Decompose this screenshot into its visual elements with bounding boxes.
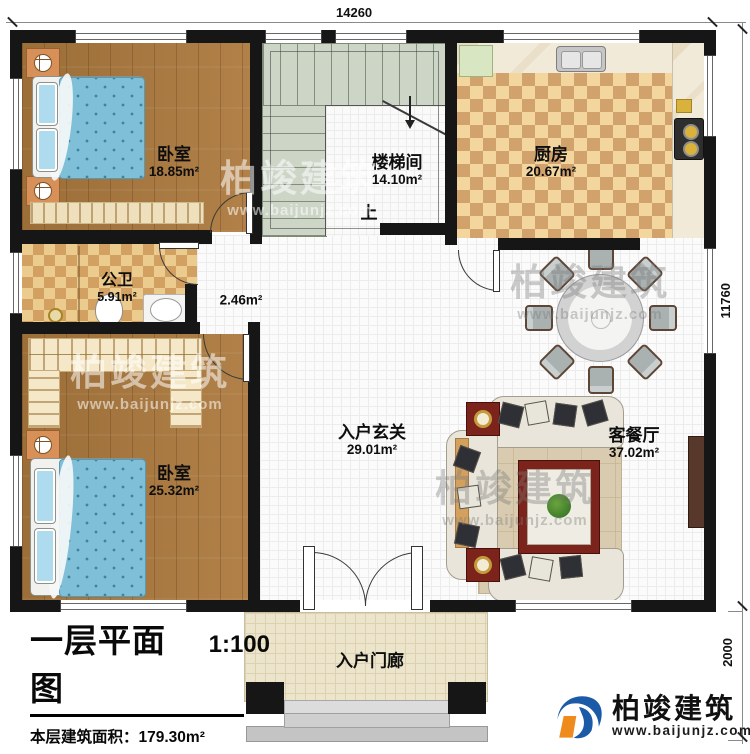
room-name: 入户玄关	[338, 423, 406, 442]
pillow	[35, 529, 55, 583]
room-name: 客餐厅	[609, 426, 660, 445]
kitchen-small-appliance	[676, 99, 692, 113]
floor-area-value: 179.30m²	[139, 729, 205, 746]
room-name: 卧室	[149, 464, 199, 483]
room-label-living-dining: 客餐厅 37.02m²	[609, 426, 660, 460]
bedroom-top-rug	[30, 202, 204, 224]
door-leaf-bathroom	[159, 242, 199, 249]
stove-burner	[683, 124, 699, 140]
room-label-bedroom-top: 卧室 18.85m²	[149, 145, 199, 179]
pillow	[37, 83, 57, 125]
room-area: 2.46m²	[220, 292, 263, 307]
stair-direction-arrow	[409, 96, 411, 122]
plan-title: 一层平面图	[30, 614, 197, 710]
porch-step	[246, 726, 488, 742]
room-label-foyer: 入户玄关 29.01m²	[338, 423, 406, 457]
wardrobe-side	[170, 370, 202, 428]
brand-name: 柏竣建筑	[612, 694, 750, 723]
kitchen-cutting-board	[459, 45, 493, 77]
lamp-icon	[34, 436, 52, 454]
pillow	[37, 129, 57, 171]
room-area: 37.02m²	[609, 445, 660, 460]
wall-stair-foyer-stub	[380, 223, 457, 235]
room-name: 公卫	[97, 272, 137, 290]
floor-plan-sheet: 卧室 18.85m² 楼梯间 14.10m² 上 厨房 20.67m² 公卫 5…	[0, 0, 750, 754]
porch-column	[448, 682, 486, 714]
plan-scale: 1:100	[209, 631, 270, 659]
room-label-bedroom-bottom: 卧室 25.32m²	[149, 464, 199, 498]
porch-step	[284, 713, 450, 728]
pillow	[35, 469, 55, 523]
wardrobe-rail	[28, 338, 202, 372]
sofa-pillow	[528, 556, 553, 581]
door-leaf-kitchen	[493, 250, 500, 292]
room-name: 厨房	[526, 145, 576, 164]
dimension-top-value: 14260	[336, 5, 372, 20]
window-right-dining	[704, 248, 716, 354]
stair-arrowhead-icon	[405, 120, 415, 129]
bed-bottom-bedroom	[30, 458, 145, 596]
room-area: 18.85m²	[149, 164, 199, 179]
window-top-bedroom	[75, 30, 187, 43]
room-area: 20.67m²	[526, 164, 576, 179]
side-table	[466, 402, 500, 436]
room-area: 14.10m²	[372, 172, 423, 187]
room-label-vestibule: 2.46m²	[220, 292, 263, 307]
floor-drain-icon	[48, 308, 63, 323]
window-top-stair-2	[335, 30, 407, 43]
sink-basin	[582, 51, 602, 69]
wall-bathroom-south	[10, 322, 200, 334]
dining-table	[556, 274, 644, 362]
room-label-kitchen: 厨房 20.67m²	[526, 145, 576, 179]
table-lamp-icon	[474, 556, 492, 574]
floor-area-line: 本层建筑面积：179.30m²	[30, 725, 270, 747]
room-area: 25.32m²	[149, 483, 199, 498]
sink-basin	[561, 51, 581, 69]
entry-door-leaf-right	[411, 546, 423, 610]
bathroom-partition	[78, 246, 80, 332]
window-left-bedroom-top	[10, 78, 22, 170]
door-leaf-bedroom-bottom	[243, 334, 250, 382]
floor-area-label: 本层建筑面积：	[30, 729, 139, 746]
sofa-pillow	[559, 555, 583, 579]
brand-website: www.baijunjz.com	[612, 723, 750, 738]
window-bottom-bedroom	[60, 600, 187, 612]
dimension-line-top	[6, 22, 746, 23]
dimension-line-right	[742, 22, 743, 744]
sofa-pillow	[524, 400, 549, 425]
wall-kitchen-south	[498, 238, 640, 250]
window-top-stair-1	[265, 30, 322, 43]
sofa-pillow	[457, 485, 482, 510]
room-label-porch: 入户门廊	[336, 651, 404, 670]
dimension-ext	[728, 611, 743, 612]
dining-chair	[525, 305, 553, 331]
window-top-kitchen	[503, 30, 640, 43]
door-leaf-bedroom-top	[246, 192, 253, 234]
stair-handrail	[270, 51, 439, 229]
bed-top-bedroom	[32, 76, 144, 178]
room-label-stairwell: 楼梯间 14.10m²	[372, 153, 423, 187]
side-table	[466, 548, 500, 582]
plant-icon	[547, 494, 571, 518]
room-area: 5.91m²	[97, 290, 137, 304]
dining-chair	[649, 305, 677, 331]
room-name: 入户门廊	[336, 651, 404, 670]
wardrobe-side	[28, 370, 60, 428]
title-block: 一层平面图 1:100 本层建筑面积：179.30m² 本栋建筑面积：520.6…	[30, 614, 270, 750]
dimension-right-value: 11760	[718, 283, 733, 318]
stove-burner	[683, 141, 699, 157]
sofa-pillow	[553, 403, 578, 428]
coffee-table	[518, 460, 600, 554]
window-right-kitchen	[704, 55, 716, 137]
dining-chair	[588, 366, 614, 394]
entry-door-leaf-left	[303, 546, 315, 610]
window-left-bathroom	[10, 252, 22, 314]
room-label-bathroom: 公卫 5.91m²	[97, 272, 137, 304]
kitchen-sink	[556, 46, 606, 72]
room-name: 卧室	[149, 145, 199, 164]
stair-up-label: 上	[361, 203, 378, 222]
window-bottom-living	[515, 600, 632, 612]
up-text: 上	[361, 203, 378, 222]
brand-logo-icon	[552, 689, 606, 743]
kitchen-stove	[674, 118, 704, 160]
wall-stair-kitchen	[445, 30, 457, 245]
bathroom-sink	[150, 298, 182, 322]
room-area: 29.01m²	[338, 442, 406, 457]
nightstand	[26, 430, 60, 460]
sofa-pillow	[454, 522, 480, 548]
dimension-porch-value: 2000	[720, 638, 735, 667]
room-name: 楼梯间	[372, 153, 423, 172]
window-left-bedroom-bottom	[10, 455, 22, 547]
table-lamp-icon	[474, 410, 492, 428]
title-underline	[30, 714, 244, 717]
brand-block: 柏竣建筑 www.baijunjz.com	[552, 684, 748, 748]
lamp-icon	[34, 54, 52, 72]
lamp-icon	[34, 182, 52, 200]
dining-table-center	[591, 309, 611, 329]
nightstand	[26, 48, 60, 78]
